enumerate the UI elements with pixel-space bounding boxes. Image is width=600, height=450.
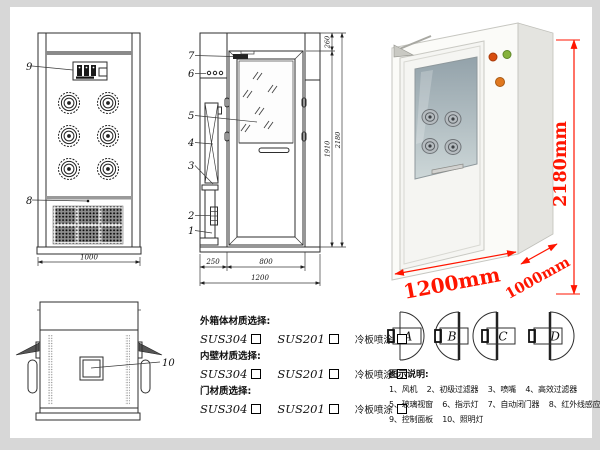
svg-text:D: D bbox=[549, 330, 560, 344]
indicator-lights-drawing bbox=[207, 71, 222, 74]
door-option-c[interactable]: C bbox=[473, 312, 515, 360]
legend-item: 6、指示灯 bbox=[442, 400, 478, 409]
legend-item: 5、玻璃视窗 bbox=[389, 400, 433, 409]
material-option-label: 冷板喷涂 bbox=[355, 332, 393, 346]
legend-item: 7、自动闭门器 bbox=[488, 400, 540, 409]
material-checkbox[interactable] bbox=[329, 404, 339, 414]
legend-item: 3、喷嘴 bbox=[488, 385, 516, 394]
top-view-drawing: 10 bbox=[14, 298, 190, 428]
material-option-label: SUS201 bbox=[277, 367, 324, 381]
legend-item: 4、高效过滤器 bbox=[525, 385, 577, 394]
door-option-b[interactable]: B bbox=[435, 312, 468, 360]
left-handle-drawing bbox=[16, 342, 40, 393]
door-closer-drawing bbox=[233, 54, 248, 59]
material-option-label: SUS304 bbox=[200, 332, 247, 346]
part-label-2: 2 bbox=[187, 211, 194, 222]
material-option-label: SUS304 bbox=[200, 402, 247, 416]
material-option-label: 冷板喷涂 bbox=[355, 402, 393, 416]
material-option-label: SUS201 bbox=[277, 402, 324, 416]
svg-text:1200: 1200 bbox=[251, 274, 269, 282]
photo-depth-dim: 1000mm bbox=[503, 253, 574, 303]
svg-text:1910: 1910 bbox=[324, 141, 332, 158]
frame-top bbox=[0, 0, 600, 7]
part-label-10: 10 bbox=[162, 358, 175, 369]
product-photo: 2180mm 1200mm 1000mm bbox=[383, 12, 585, 308]
photo-height-dim: 2180mm bbox=[551, 121, 571, 207]
material-option-label: SUS304 bbox=[200, 367, 247, 381]
legend-item: 2、初级过滤器 bbox=[427, 385, 479, 394]
svg-text:260: 260 bbox=[324, 36, 332, 49]
side-view-drawing: 7 6 5 4 3 2 1 250 800 1200 260 1910 2180 bbox=[185, 28, 350, 290]
side-height-dimensions: 260 1910 2180 bbox=[306, 33, 346, 247]
frame-left bbox=[0, 0, 10, 450]
lower-band bbox=[46, 196, 132, 200]
nozzle-icons bbox=[59, 93, 119, 180]
legend-item: 10、照明灯 bbox=[442, 415, 483, 424]
svg-text:C: C bbox=[498, 330, 507, 344]
frame-bottom bbox=[0, 438, 600, 450]
ceiling-lamp-drawing bbox=[80, 357, 103, 380]
front-width-dimension: 1000 bbox=[38, 254, 140, 267]
material-section-title: 内壁材质选择: bbox=[200, 350, 423, 364]
part-label-5: 5 bbox=[188, 111, 194, 122]
material-options-row: SUS304 SUS201 冷板喷涂 bbox=[200, 332, 423, 346]
material-checkbox[interactable] bbox=[329, 369, 339, 379]
legend-item: 1、风机 bbox=[389, 385, 417, 394]
material-option-label: SUS201 bbox=[277, 332, 324, 346]
front-view-drawing: 9 8 1000 bbox=[24, 28, 149, 268]
svg-text:B: B bbox=[447, 330, 457, 344]
door-option-d[interactable]: D bbox=[529, 312, 574, 360]
legend-row: 9、控制面板 10、照明灯 bbox=[389, 412, 600, 427]
svg-text:250: 250 bbox=[205, 258, 220, 266]
part-label-9: 9 bbox=[26, 62, 33, 73]
part-label-3: 3 bbox=[188, 161, 194, 172]
svg-text:800: 800 bbox=[259, 258, 273, 266]
material-section-title: 外箱体材质选择: bbox=[200, 315, 423, 329]
material-checkbox[interactable] bbox=[397, 334, 407, 344]
right-handle-drawing bbox=[138, 342, 162, 393]
part-label-8: 8 bbox=[26, 196, 32, 207]
part-label-1: 1 bbox=[188, 226, 194, 237]
svg-text:2180: 2180 bbox=[334, 132, 342, 150]
legend-row: 1、风机 2、初级过滤器 3、喷嘴 4、高效过滤器 bbox=[389, 382, 600, 397]
legend-title: 图示说明: bbox=[389, 367, 600, 380]
air-shower-spec-sheet: 9 8 1000 bbox=[0, 0, 600, 450]
door-drawing bbox=[225, 51, 306, 245]
material-checkbox[interactable] bbox=[329, 334, 339, 344]
control-panel-icon bbox=[73, 62, 107, 80]
part-label-7: 7 bbox=[188, 51, 195, 62]
side-bottom-dimensions: 250 800 1200 bbox=[200, 252, 320, 286]
material-checkbox[interactable] bbox=[251, 334, 261, 344]
legend: 图示说明: 1、风机 2、初级过滤器 3、喷嘴 4、高效过滤器 5、玻璃视窗 6… bbox=[389, 367, 600, 427]
part-label-4: 4 bbox=[187, 138, 194, 149]
legend-row: 5、玻璃视窗 6、指示灯 7、自动闭门器 8、红外线感应器 bbox=[389, 397, 600, 412]
material-checkbox[interactable] bbox=[251, 404, 261, 414]
legend-item: 9、控制面板 bbox=[389, 415, 433, 424]
door-handle-drawing bbox=[259, 148, 289, 153]
svg-text:1000: 1000 bbox=[80, 254, 98, 262]
part-label-6: 6 bbox=[188, 69, 195, 80]
legend-item: 8、红外线感应器 bbox=[549, 400, 600, 409]
cabinet-side-face bbox=[518, 23, 553, 254]
material-option-label: 冷板喷涂 bbox=[355, 367, 393, 381]
material-checkbox[interactable] bbox=[251, 369, 261, 379]
air-grille bbox=[53, 206, 123, 244]
